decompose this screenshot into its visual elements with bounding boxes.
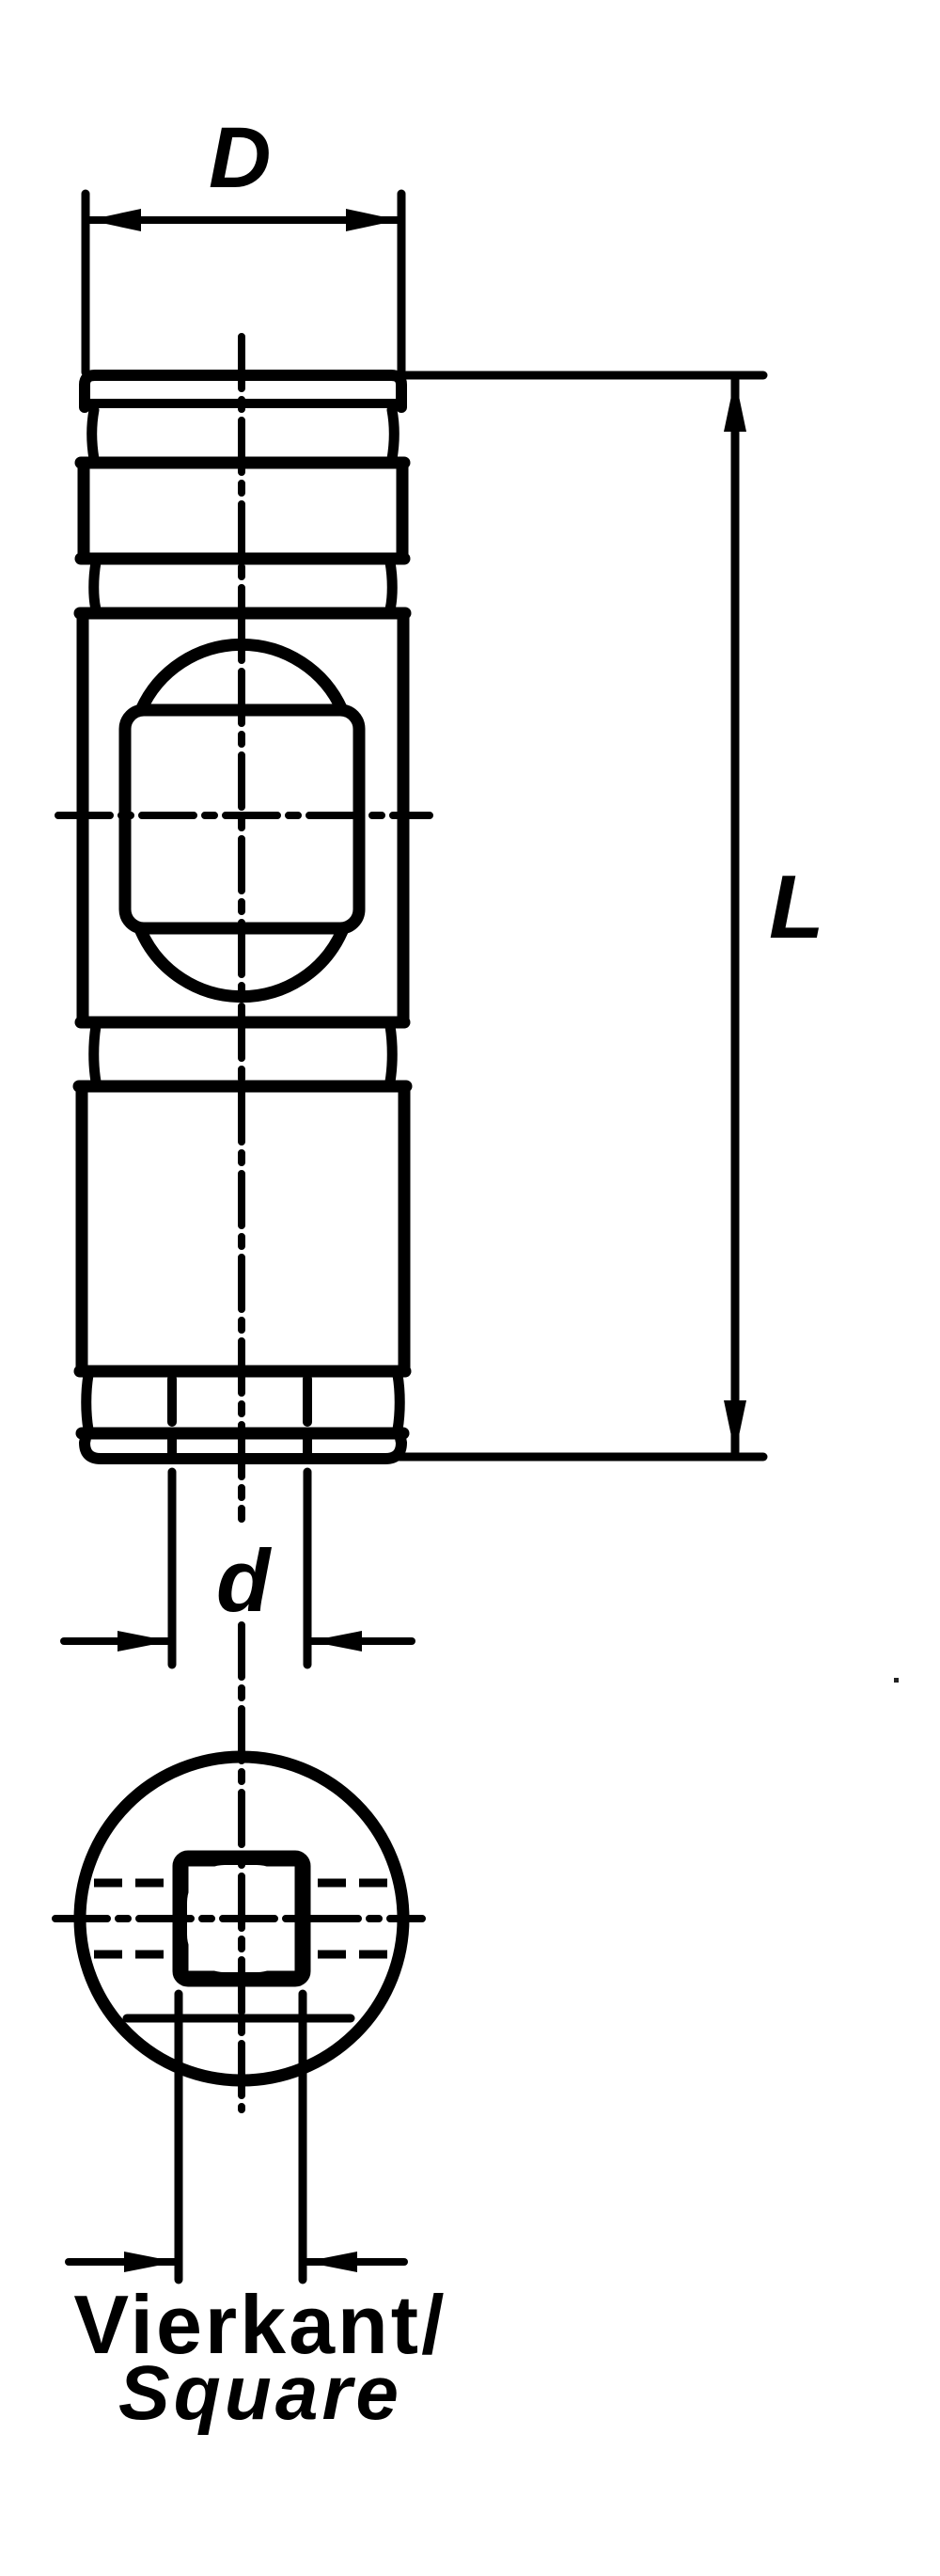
groove2-right-edge xyxy=(390,562,392,609)
front-view xyxy=(58,337,430,1519)
bottomband-left-edge xyxy=(86,1375,88,1430)
groove1-left-edge xyxy=(92,410,94,459)
bottom-view xyxy=(55,1625,422,2110)
length-label: L xyxy=(769,862,824,953)
dimd-arrow-right xyxy=(309,1631,362,1651)
diameter-label: D xyxy=(209,115,271,201)
scan-speck xyxy=(894,1678,899,1683)
hole-diameter-label: d xyxy=(216,1537,270,1625)
dimD-arrow-right xyxy=(346,209,399,231)
dimsq-arrow-left xyxy=(124,2252,177,2272)
dimD-arrow-left xyxy=(88,209,141,231)
groove3-left-edge xyxy=(94,1026,96,1082)
dimsq-arrow-right xyxy=(305,2252,357,2272)
technical-drawing-page: D L d Vierkant/ Square xyxy=(0,0,940,2576)
dimL-arrow-top xyxy=(724,378,746,432)
dimd-arrow-left xyxy=(117,1631,170,1651)
dimension-L xyxy=(399,375,763,1457)
bottomband-right-edge xyxy=(398,1375,399,1430)
drawing-linework xyxy=(0,0,940,2576)
groove3-right-edge xyxy=(390,1026,392,1082)
groove1-right-edge xyxy=(392,410,394,459)
dimL-arrow-bottom xyxy=(724,1400,746,1454)
groove2-left-edge xyxy=(94,562,96,609)
caption-square: Square xyxy=(0,2355,521,2432)
